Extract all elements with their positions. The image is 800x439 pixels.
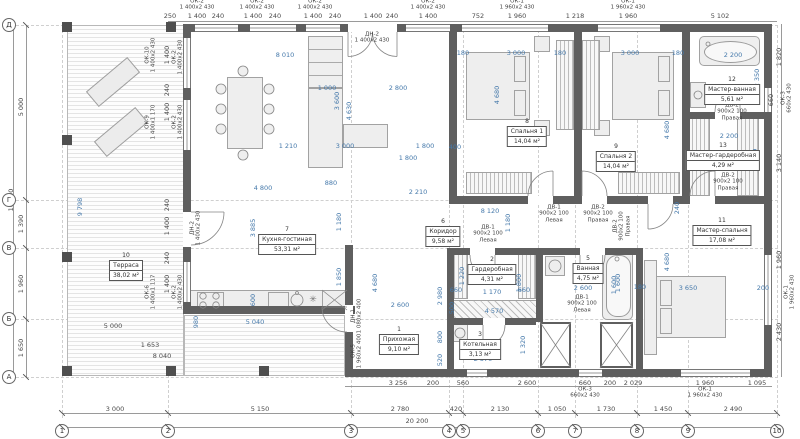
room-area: 4,29 м² bbox=[687, 161, 759, 170]
dim-label: 2 800 bbox=[389, 85, 408, 92]
room-number: 9 bbox=[614, 144, 618, 150]
door-tag: ДВ-2900х2 100Правая bbox=[612, 211, 631, 241]
opening-tag-line: 1 080х2 400 bbox=[357, 299, 363, 334]
dim-label: 5 000 bbox=[104, 323, 123, 330]
room-label: 6Коридор9,58 м² bbox=[425, 219, 460, 247]
room-number: 1 bbox=[397, 327, 401, 333]
room-name: Мастер-спальня bbox=[693, 226, 750, 236]
dim-label: 1 820 bbox=[776, 48, 783, 67]
room-number: 6 bbox=[441, 219, 445, 225]
opening-tag-line: 1 400х2 430 bbox=[178, 275, 184, 310]
dim-tick bbox=[23, 22, 29, 28]
dim-label: 3 000 bbox=[507, 50, 526, 57]
opening-tag-line: 1 400х2 430 bbox=[355, 38, 390, 44]
opening-tag-line: 1 400х2 430 bbox=[196, 211, 202, 246]
opening-tag: ОК-51 960х2 400 bbox=[351, 334, 364, 369]
dim-label: 2 780 bbox=[391, 406, 410, 413]
room-label: 9Спальня 214,04 м² bbox=[596, 144, 636, 172]
room-area: 4,31 м² bbox=[468, 275, 515, 284]
room-label-box: Котельная3,13 м² bbox=[459, 339, 501, 360]
dim-tick bbox=[23, 316, 29, 322]
dim-label: 5 040 bbox=[246, 319, 265, 326]
room-label: 12Мастер-ванная5,61 м² bbox=[704, 77, 760, 105]
dim-label: 2 600 bbox=[391, 302, 410, 309]
dim-label: 3 256 bbox=[389, 380, 408, 387]
room-label: 11Мастер-спальня17,08 м² bbox=[692, 218, 751, 246]
dim-label: 2 029 bbox=[624, 380, 643, 387]
grid-bubble-row-Б: Б bbox=[2, 312, 16, 326]
dim-tick bbox=[460, 410, 466, 416]
opening-tag: ДН-11 080х2 400 bbox=[351, 299, 364, 334]
room-area: 4,75 м² bbox=[574, 274, 603, 283]
dim-label: 1 095 bbox=[748, 380, 767, 387]
dim-label: 240 bbox=[164, 252, 171, 264]
opening-tag: ОК-21 400х2 430 bbox=[298, 0, 333, 11]
dim-label: 1 400 bbox=[304, 13, 323, 20]
dim-tick bbox=[59, 410, 65, 416]
opening-tag-line: 1 400х2 430 bbox=[411, 5, 446, 11]
grid-bubble-row-Д: Д bbox=[2, 18, 16, 32]
labels-layer: 2501 4002401 4002401 4002401 4002401 400… bbox=[0, 0, 800, 439]
dim-label: 1 400 bbox=[188, 13, 207, 20]
dim-label: 1 650 bbox=[18, 339, 25, 358]
room-name: Котельная bbox=[460, 340, 500, 350]
dim-label: 2 600 bbox=[574, 285, 593, 292]
opening-tag: ОК-21 400х2 430 bbox=[172, 105, 185, 140]
dim-label: 4 680 bbox=[372, 274, 379, 293]
dim-label: 240 bbox=[164, 84, 171, 96]
dim-tick bbox=[572, 410, 578, 416]
dim-label: 8 010 bbox=[276, 52, 295, 59]
dim-label: 4 680 bbox=[494, 86, 501, 105]
dim-label: 8 120 bbox=[481, 208, 500, 215]
dim-label: 200 bbox=[427, 380, 439, 387]
room-label-box: Спальня 114,04 м² bbox=[507, 126, 547, 147]
room-label: 7Кухня-гостиная53,31 м² bbox=[258, 227, 316, 255]
room-area: 9,58 м² bbox=[426, 237, 459, 246]
dim-label: 660 bbox=[450, 287, 462, 294]
opening-tag-line: 1 400х2 430 bbox=[298, 5, 333, 11]
dim-label: 2 210 bbox=[409, 189, 428, 196]
dim-label: 9 798 bbox=[77, 198, 84, 217]
room-number: 13 bbox=[719, 143, 727, 149]
room-number: 7 bbox=[285, 227, 289, 233]
dim-label: 4 680 bbox=[664, 253, 671, 272]
door-tag: ДВ-2900х2 100Правая bbox=[583, 204, 613, 223]
dim-label: 980 bbox=[193, 316, 200, 328]
dim-label: 1 000 bbox=[318, 85, 337, 92]
dim-tick bbox=[348, 410, 354, 416]
room-number: 11 bbox=[718, 218, 726, 224]
dim-label: 240 bbox=[212, 13, 224, 20]
dim-label: 3 000 bbox=[106, 406, 125, 413]
dim-label: 3 000 bbox=[336, 143, 355, 150]
room-number: 12 bbox=[728, 77, 736, 83]
room-name: Кухня-гостиная bbox=[259, 235, 315, 245]
opening-tag: ОК-3660х2 430 bbox=[781, 83, 794, 113]
dim-label: 3 000 bbox=[621, 50, 640, 57]
dim-label: 1 220 bbox=[459, 267, 466, 286]
room-label-box: Спальня 214,04 м² bbox=[596, 151, 636, 172]
dim-label: 1 218 bbox=[566, 13, 585, 20]
dim-tick bbox=[165, 410, 171, 416]
room-name: Коридор bbox=[426, 227, 459, 237]
room-number: 3 bbox=[478, 332, 482, 338]
dim-tick bbox=[685, 410, 691, 416]
dim-tick bbox=[634, 410, 640, 416]
dim-label: 8 040 bbox=[153, 353, 172, 360]
grid-bubble-row-В: В bbox=[2, 241, 16, 255]
dim-label: 1 320 bbox=[520, 336, 527, 355]
dim-label: 560 bbox=[457, 380, 469, 387]
room-number: 5 bbox=[586, 256, 590, 262]
opening-tag-line: 1 400х2 430 bbox=[180, 5, 215, 11]
dim-label: 200 bbox=[604, 380, 616, 387]
grid-bubble-row-А: А bbox=[2, 370, 16, 384]
opening-tag: ОК-11 960х2 430 bbox=[784, 275, 797, 310]
dim-label: 880 bbox=[325, 180, 337, 187]
grid-bubble-row-Г: Г bbox=[2, 193, 16, 207]
dim-label: 1 180 bbox=[336, 213, 343, 232]
room-label-box: Мастер-ванная5,61 м² bbox=[704, 84, 760, 105]
opening-tag-line: 1 960х2 430 bbox=[611, 5, 646, 11]
dim-label: 1 210 bbox=[279, 143, 298, 150]
opening-tag: ОК-11 960х2 430 bbox=[611, 0, 646, 11]
room-name: Мастер-гардеробная bbox=[687, 151, 759, 161]
dim-label: 1 960 bbox=[18, 275, 25, 294]
dim-label: 2 200 bbox=[720, 133, 739, 140]
opening-tag: ДН-21 400х2 430 bbox=[355, 32, 390, 45]
opening-tag-line: 660х2 430 bbox=[570, 393, 600, 399]
opening-tag: ОК-91 400х1 170 bbox=[145, 105, 158, 140]
room-label-box: Кухня-гостиная53,31 м² bbox=[258, 234, 316, 255]
room-number: 10 bbox=[122, 253, 130, 259]
dim-label: 1 850 bbox=[336, 268, 343, 287]
dim-label: 3 600 bbox=[334, 92, 341, 111]
dim-label: 1 400 bbox=[364, 13, 383, 20]
opening-tag: ОК-11 960х2 430 bbox=[500, 0, 535, 11]
dim-label: 1 600 bbox=[611, 276, 618, 295]
dim-label: 1 170 bbox=[483, 289, 502, 296]
room-area: 53,31 м² bbox=[259, 245, 315, 254]
dim-label: 500 bbox=[449, 302, 456, 314]
room-label: 3Котельная3,13 м² bbox=[459, 332, 501, 360]
dim-tick bbox=[774, 410, 780, 416]
room-label: 10Терраса38,02 м² bbox=[109, 253, 143, 281]
opening-tag-line: 1 400х1 117 bbox=[151, 275, 157, 310]
opening-tag: ОК-61 400х1 117 bbox=[145, 275, 158, 310]
dim-label: 1 400 bbox=[419, 13, 438, 20]
dim-label: 2 600 bbox=[518, 380, 537, 387]
dim-label: 5 150 bbox=[251, 406, 270, 413]
dim-tick bbox=[23, 197, 29, 203]
door-tag-line: Правая bbox=[583, 217, 613, 223]
dim-label: 600 bbox=[250, 294, 257, 306]
dim-label: 180 bbox=[672, 50, 684, 57]
door-tag: ДВ-2900х2 100Правая bbox=[717, 102, 747, 121]
opening-tag: ДН-21 400х2 430 bbox=[190, 211, 203, 246]
dim-label: 1 400 bbox=[164, 46, 171, 65]
dim-label: 2 130 bbox=[491, 406, 510, 413]
door-tag: ДВ-1900х2 100Левая bbox=[539, 204, 569, 223]
dim-label: 1 450 bbox=[654, 406, 673, 413]
dim-label: 5 000 bbox=[18, 98, 25, 117]
room-label-box: Мастер-спальня17,08 м² bbox=[692, 225, 751, 246]
door-tag-line: Левая bbox=[539, 217, 569, 223]
dim-label: 240 bbox=[386, 13, 398, 20]
dim-label: 3 650 bbox=[679, 285, 698, 292]
door-tag-line: Правая bbox=[713, 185, 743, 191]
opening-tag: ОК-21 400х2 430 bbox=[180, 0, 215, 11]
room-name: Прихожая bbox=[380, 335, 418, 345]
opening-tag-line: 1 400х2 430 bbox=[178, 40, 184, 75]
dim-label: 1 400 bbox=[164, 217, 171, 236]
opening-tag: ОК-3660х2 430 bbox=[570, 387, 600, 400]
room-name: Ванная bbox=[574, 264, 603, 274]
opening-tag-line: 660х2 430 bbox=[787, 83, 793, 113]
opening-tag: ОК-101 400х2 430 bbox=[145, 38, 158, 73]
dim-label: 2 490 bbox=[724, 406, 743, 413]
dim-label: 4 630 bbox=[346, 102, 353, 121]
opening-tag: ОК-21 400х2 430 bbox=[172, 40, 185, 75]
room-area: 14,04 м² bbox=[597, 162, 635, 171]
room-area: 9,10 м² bbox=[380, 345, 418, 354]
dim-label: 4 570 bbox=[485, 308, 504, 315]
dim-label: 4 680 bbox=[664, 121, 671, 140]
dim-label: 1 960 bbox=[508, 13, 527, 20]
dim-label: 752 bbox=[472, 13, 484, 20]
opening-tag-line: 1 400х2 430 bbox=[178, 105, 184, 140]
room-label: 13Мастер-гардеробная4,29 м² bbox=[686, 143, 760, 171]
dim-label: 5 102 bbox=[711, 13, 730, 20]
dim-label: 660 bbox=[579, 380, 591, 387]
room-area: 14,04 м² bbox=[508, 137, 546, 146]
dim-tick bbox=[23, 374, 29, 380]
room-label-box: Прихожая9,10 м² bbox=[379, 334, 419, 355]
dim-label: 20 200 bbox=[406, 418, 429, 425]
opening-tag-line: 1 960х2 430 bbox=[688, 393, 723, 399]
dim-label: 250 bbox=[164, 13, 176, 20]
dim-label: 4 800 bbox=[254, 185, 273, 192]
room-area: 17,08 м² bbox=[693, 236, 750, 245]
dim-label: 1 180 bbox=[505, 214, 512, 233]
floor-plan-canvas: ✳ bbox=[0, 0, 800, 439]
dim-label: 180 bbox=[554, 50, 566, 57]
dim-label: 180 bbox=[457, 50, 469, 57]
door-tag-line: Левая bbox=[567, 307, 597, 313]
dim-label: 1 800 bbox=[416, 143, 435, 150]
opening-tag-line: 1 400х2 430 bbox=[240, 5, 275, 11]
dim-label: 1 400 bbox=[244, 13, 263, 20]
room-area: 38,02 м² bbox=[110, 271, 142, 280]
door-tag-line: Правая bbox=[717, 115, 747, 121]
dim-label: 3 140 bbox=[776, 154, 783, 173]
dim-label: 240 bbox=[269, 13, 281, 20]
door-tag: ДВ-1900х2 100Левая bbox=[567, 294, 597, 313]
opening-tag-line: 1 960х2 430 bbox=[790, 275, 796, 310]
dim-label: 400 bbox=[449, 144, 461, 151]
dim-label: 3 885 bbox=[250, 219, 257, 238]
room-label: 8Спальня 114,04 м² bbox=[507, 119, 547, 147]
room-label-box: Терраса38,02 м² bbox=[109, 260, 143, 281]
dim-label: 240 bbox=[164, 199, 171, 211]
room-number: 8 bbox=[525, 119, 529, 125]
dim-label: 1 730 bbox=[597, 406, 616, 413]
opening-tag-line: 1 960х2 430 bbox=[500, 5, 535, 11]
dim-label: 660 bbox=[768, 94, 775, 106]
opening-tag-line: 1 400х2 430 bbox=[151, 38, 157, 73]
dim-label: 200 bbox=[757, 285, 769, 292]
dim-label: 1 960 bbox=[696, 380, 715, 387]
room-name: Спальня 2 bbox=[597, 152, 635, 162]
dim-label: 1 800 bbox=[399, 155, 418, 162]
room-name: Гардеробная bbox=[468, 265, 515, 275]
room-label-box: Мастер-гардеробная4,29 м² bbox=[686, 150, 760, 171]
room-number: 2 bbox=[490, 257, 494, 263]
room-name: Мастер-ванная bbox=[705, 85, 759, 95]
dim-label: 1 390 bbox=[18, 215, 25, 234]
dim-tick bbox=[535, 410, 541, 416]
door-tag: ДВ-2900х2 100Правая bbox=[713, 172, 743, 191]
room-label: 5Ванная4,75 м² bbox=[573, 256, 604, 284]
room-area: 5,61 м² bbox=[705, 95, 759, 104]
dim-label: 2 200 bbox=[724, 52, 743, 59]
dim-label: 1 800 bbox=[516, 274, 523, 293]
dim-label: 1 653 bbox=[141, 342, 160, 349]
room-label: 2Гардеробная4,31 м² bbox=[467, 257, 516, 285]
opening-tag: ОК-21 400х2 430 bbox=[411, 0, 446, 11]
door-tag-line: Правая bbox=[625, 211, 631, 241]
dim-tick bbox=[23, 245, 29, 251]
opening-tag: ОК-21 400х2 430 bbox=[240, 0, 275, 11]
dim-label: 2 430 bbox=[776, 323, 783, 342]
room-label-box: Ванная4,75 м² bbox=[573, 263, 604, 284]
dim-label: 1 400 bbox=[164, 275, 171, 294]
room-label: 1Прихожая9,10 м² bbox=[379, 327, 419, 355]
dim-label: 800 bbox=[437, 331, 444, 343]
dim-label: 240 bbox=[329, 13, 341, 20]
dim-label: 1 960 bbox=[619, 13, 638, 20]
room-area: 3,13 м² bbox=[460, 350, 500, 359]
door-tag-line: Левая bbox=[473, 237, 503, 243]
dim-label: 240 bbox=[674, 202, 681, 214]
dim-label: 1 960 bbox=[776, 251, 783, 270]
opening-tag: ОК-21 400х2 430 bbox=[172, 275, 185, 310]
room-label-box: Гардеробная4,31 м² bbox=[467, 264, 516, 285]
room-name: Терраса bbox=[110, 261, 142, 271]
room-label-box: Коридор9,58 м² bbox=[425, 226, 460, 247]
opening-tag-line: 1 400х1 170 bbox=[151, 105, 157, 140]
opening-tag: ОК-11 960х2 430 bbox=[688, 387, 723, 400]
door-tag: ДВ-1900х2 100Левая bbox=[473, 224, 503, 243]
room-name: Спальня 1 bbox=[508, 127, 546, 137]
dim-label: 1 050 bbox=[548, 406, 567, 413]
dim-label: 2 980 bbox=[437, 287, 444, 306]
dim-label: 520 bbox=[437, 354, 444, 366]
dim-label: 1 400 bbox=[164, 103, 171, 122]
opening-tag-line: 1 960х2 400 bbox=[357, 334, 363, 369]
dim-label: 180 bbox=[634, 284, 646, 291]
